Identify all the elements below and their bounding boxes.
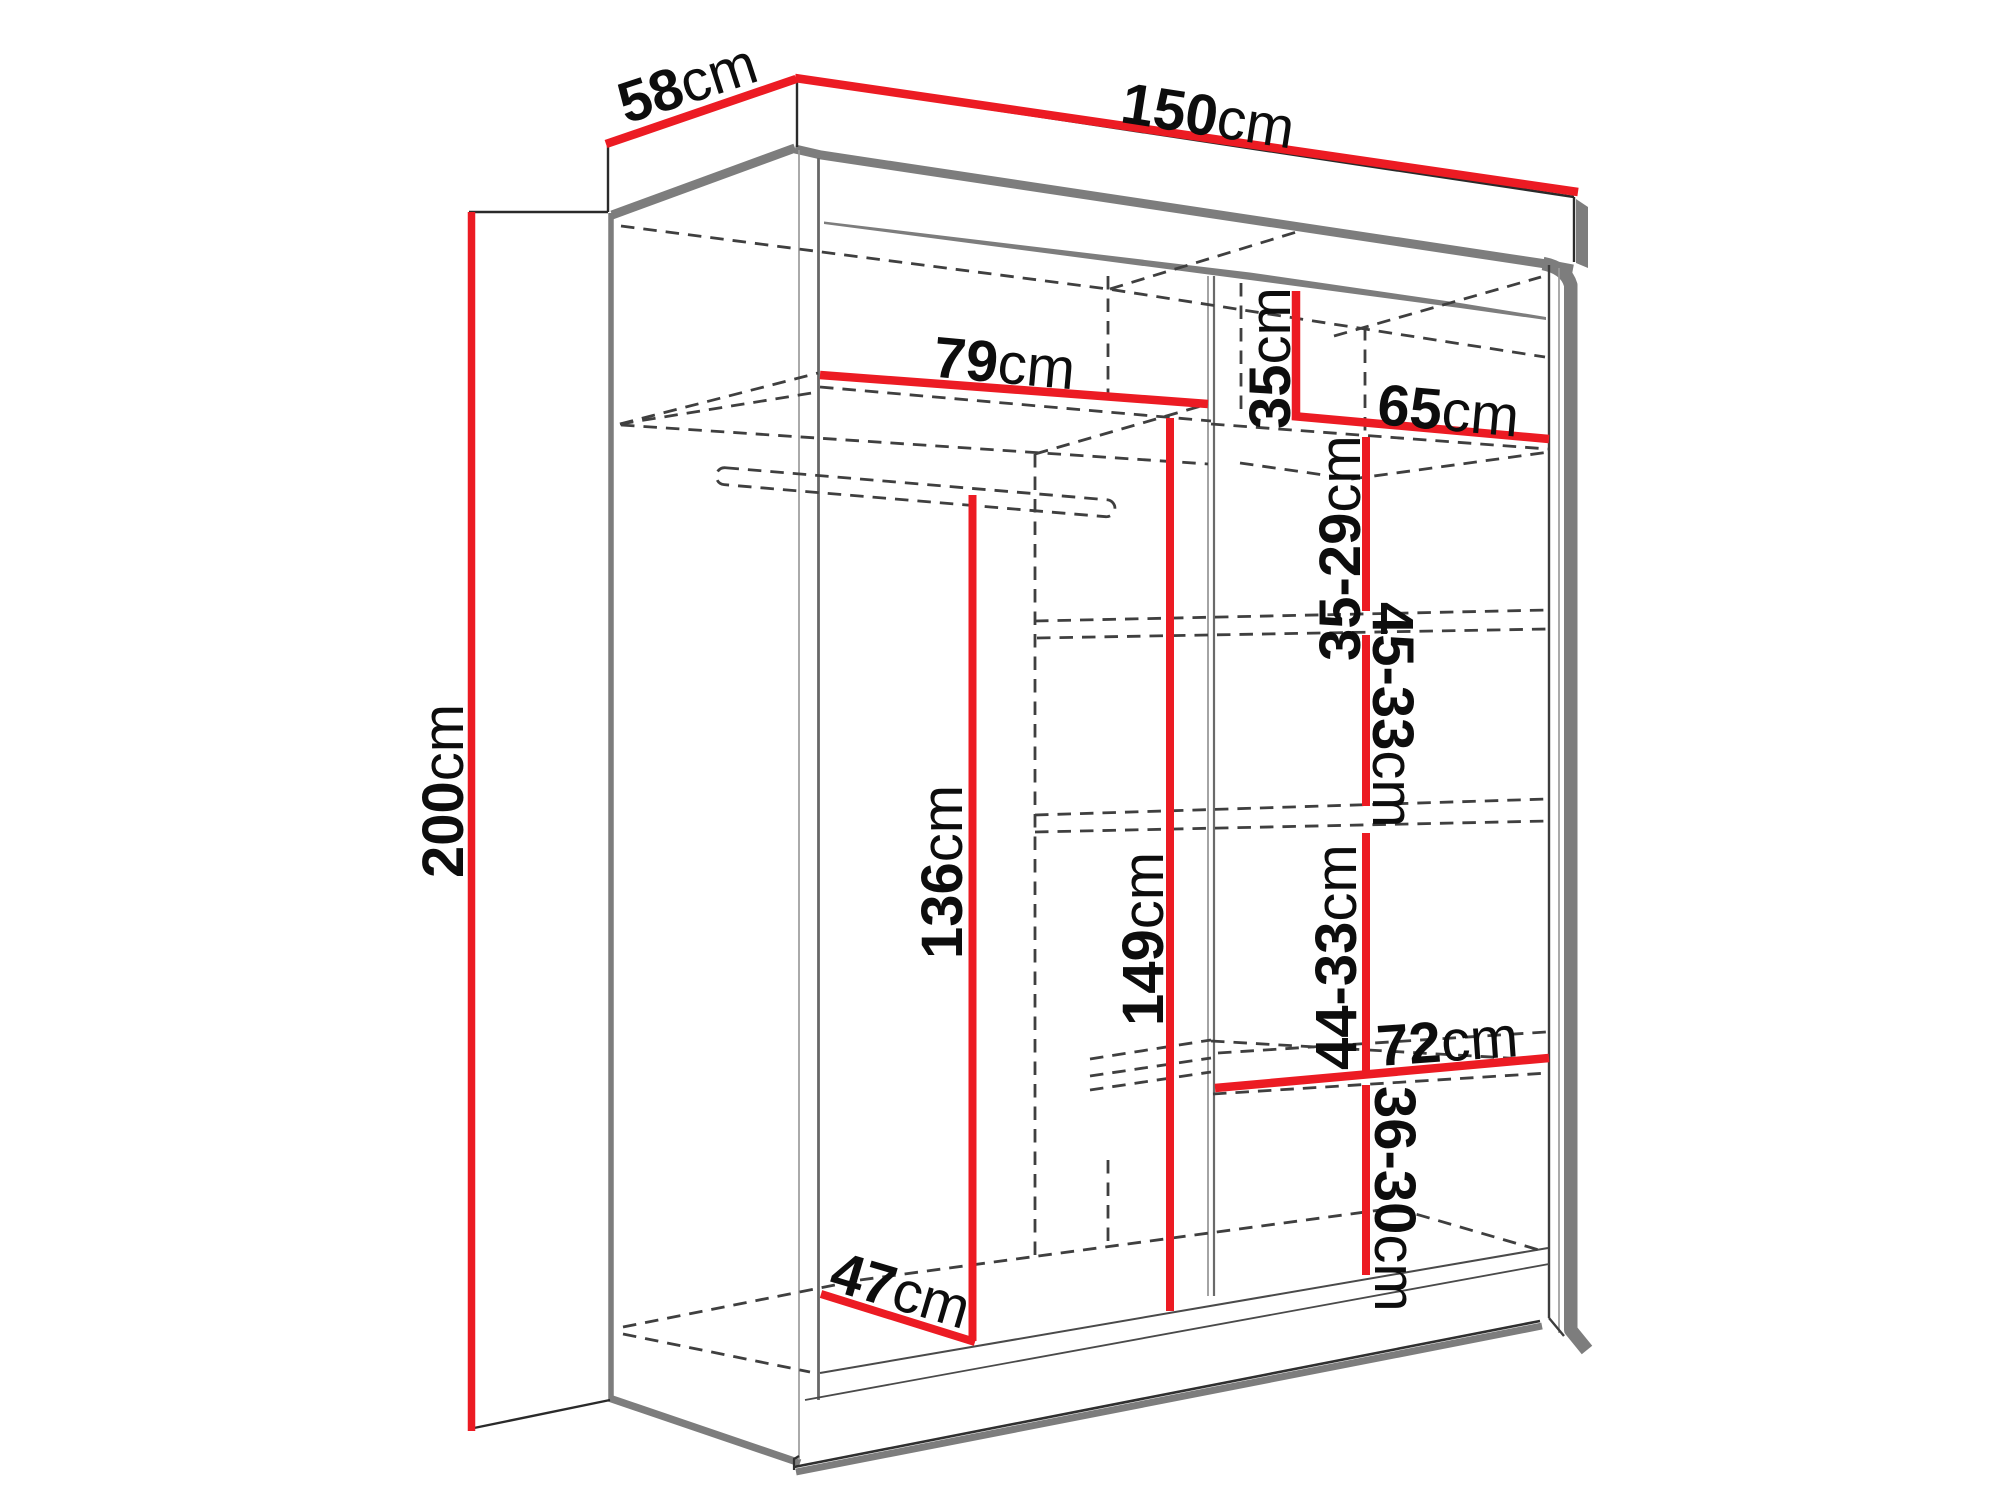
svg-text:44-33cm: 44-33cm: [1304, 844, 1369, 1070]
svg-text:150cm: 150cm: [1117, 71, 1299, 162]
svg-text:47cm: 47cm: [823, 1239, 977, 1342]
svg-text:35cm: 35cm: [1238, 287, 1303, 429]
svg-text:65cm: 65cm: [1375, 372, 1522, 449]
svg-text:36-30cm: 36-30cm: [1362, 1086, 1427, 1312]
svg-text:72cm: 72cm: [1374, 1004, 1520, 1079]
svg-text:79cm: 79cm: [931, 325, 1078, 403]
svg-text:136cm: 136cm: [910, 785, 975, 959]
svg-text:200cm: 200cm: [411, 704, 476, 878]
svg-text:45-33cm: 45-33cm: [1360, 602, 1425, 828]
svg-text:149cm: 149cm: [1111, 852, 1176, 1026]
